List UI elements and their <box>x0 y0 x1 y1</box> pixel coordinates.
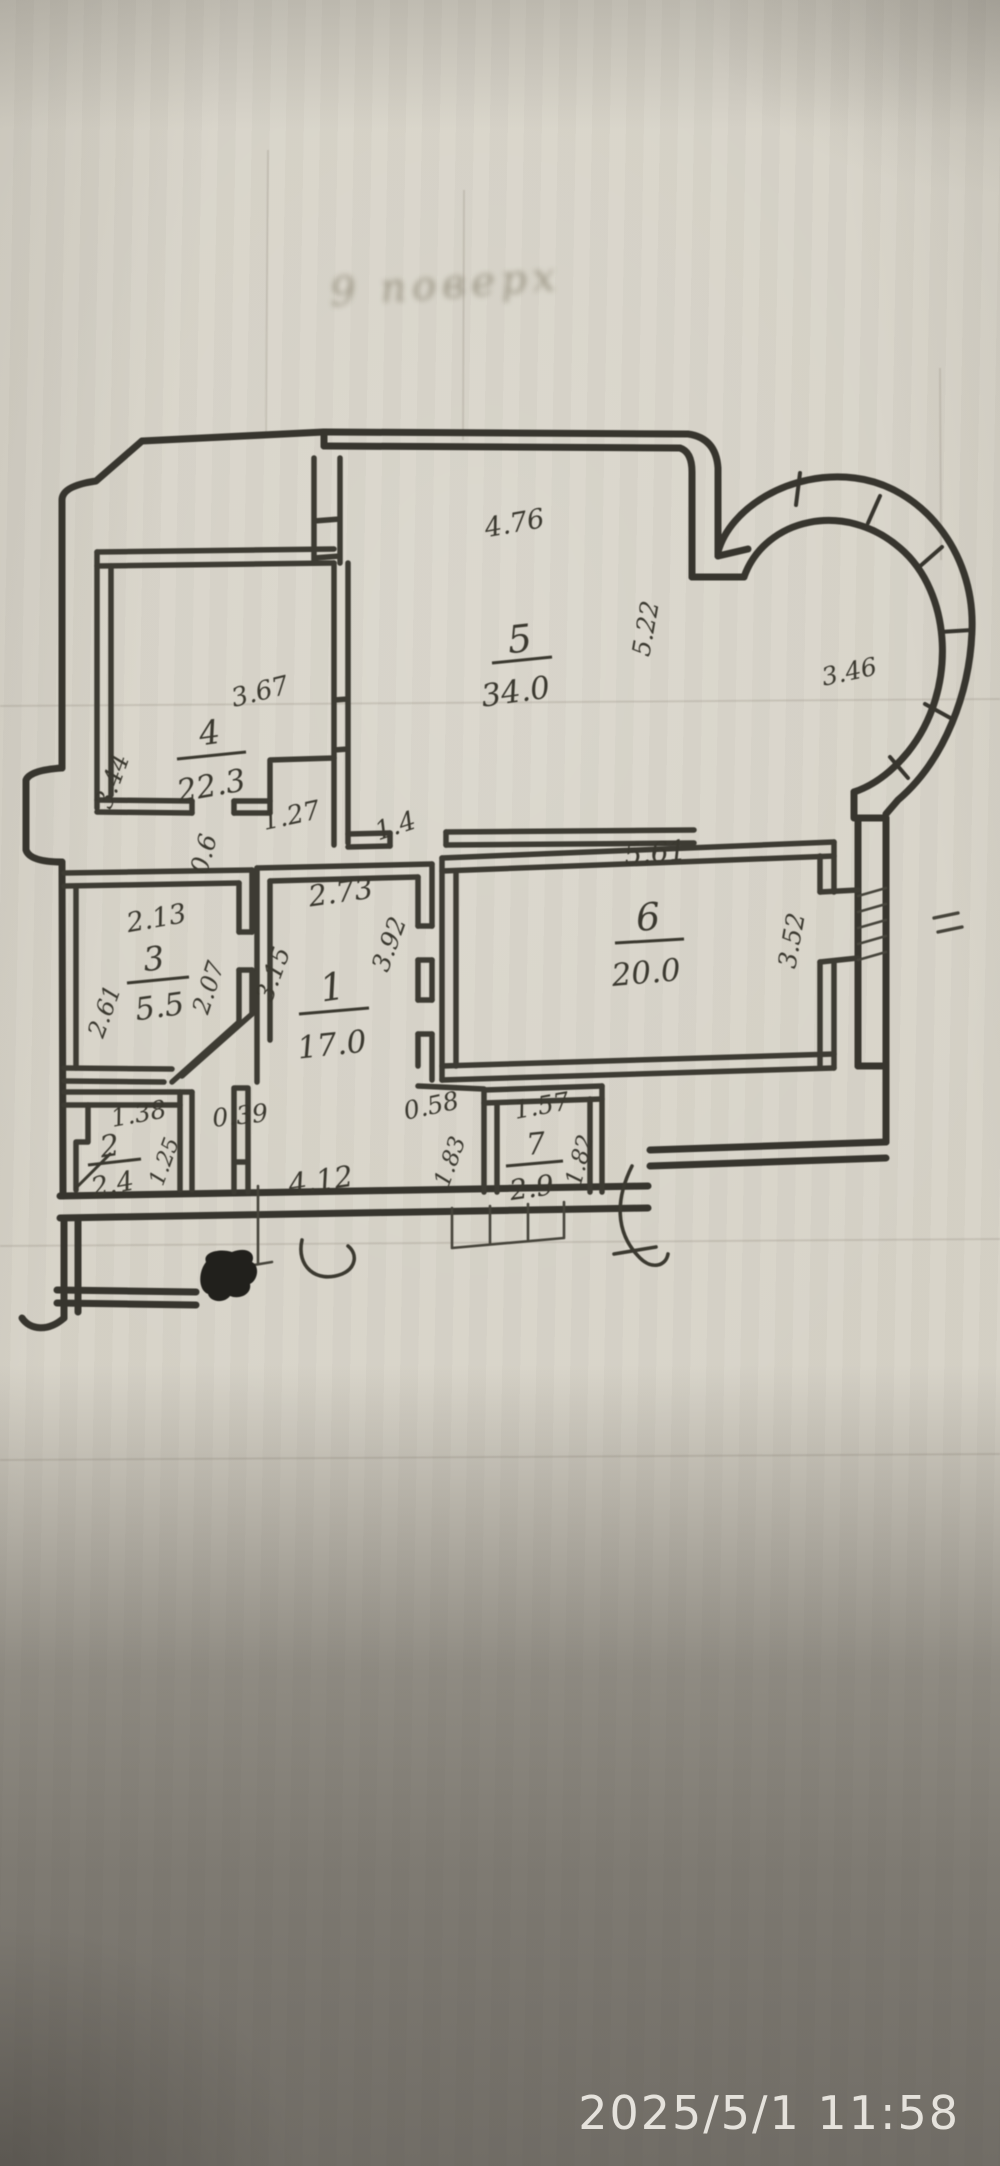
dim-label-1.82: 1.82 <box>561 1132 599 1188</box>
camera-timestamp: 2025/5/1 11:58 <box>578 2086 960 2140</box>
dim-label-3.67: 3.67 <box>228 671 292 714</box>
room-number-6: 6 <box>634 894 661 940</box>
room-fraction-line-4 <box>177 752 246 759</box>
dim-label-5.22: 5.22 <box>627 599 665 659</box>
dim-label-0.58: 0.58 <box>401 1086 461 1126</box>
floor-plan-svg: 4.765.223.463.673.441.270.61.45.613.522.… <box>0 0 1000 2166</box>
dim-label-0.39: 0.39 <box>211 1098 269 1133</box>
room-number-7: 7 <box>525 1126 549 1163</box>
room-area-7: 2.9 <box>506 1168 556 1207</box>
dim-label-4.12: 4.12 <box>285 1159 355 1202</box>
room-area-1: 17.0 <box>296 1024 368 1067</box>
dim-label-3.52: 3.52 <box>773 911 811 971</box>
dim-label-1.83: 1.83 <box>429 1133 471 1190</box>
interior-walls <box>64 458 858 1192</box>
dim-label-3.46: 3.46 <box>819 652 880 692</box>
dim-label-1.38: 1.38 <box>109 1095 169 1133</box>
room-number-2: 2 <box>97 1128 122 1165</box>
floor-plan-photo: 9 поверх <box>0 0 1000 2166</box>
room-area-3: 5.5 <box>133 986 187 1029</box>
room-number-1: 1 <box>317 964 347 1011</box>
dim-label-2.07: 2.07 <box>187 957 231 1018</box>
dim-label-3.92: 3.92 <box>366 913 412 975</box>
dim-label-2.61: 2.61 <box>82 981 127 1042</box>
room-area-5: 34.0 <box>479 669 552 714</box>
room-number-4: 4 <box>195 712 222 754</box>
room-area-6: 20.0 <box>609 952 682 994</box>
dim-label-1.4: 1.4 <box>371 806 420 847</box>
room-number-5: 5 <box>505 616 534 662</box>
room-number-3: 3 <box>141 938 166 979</box>
room-fraction-line-6 <box>615 939 684 943</box>
dim-label-2.13: 2.13 <box>123 898 189 939</box>
paper-crease-lines <box>0 150 1000 1460</box>
dim-label-4.76: 4.76 <box>481 503 547 544</box>
room-fraction-line-3 <box>127 977 189 983</box>
dim-label-1.57: 1.57 <box>512 1087 572 1125</box>
dim-label-5.61: 5.61 <box>623 833 688 871</box>
ink-blot <box>200 1250 257 1301</box>
